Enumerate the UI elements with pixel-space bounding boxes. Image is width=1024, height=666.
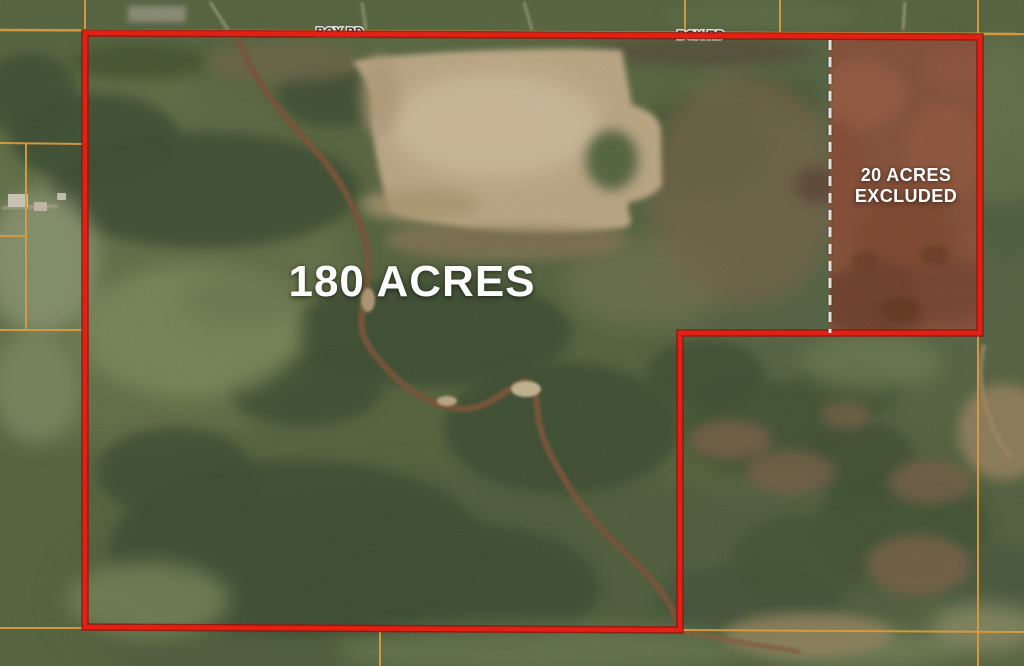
main-parcel-acreage-label: 180 ACRES: [288, 257, 535, 307]
satellite-map: BOX RD BOX RD: [0, 0, 1024, 666]
excluded-parcel-label-line2: EXCLUDED: [855, 186, 957, 207]
aerial-map-view[interactable]: BOX RD BOX RD 180 ACRES 20 ACRES: [0, 0, 1024, 666]
excluded-parcel-label: 20 ACRES EXCLUDED: [855, 165, 957, 207]
excluded-parcel-label-line1: 20 ACRES: [855, 165, 957, 186]
grain-light: [0, 0, 1024, 666]
